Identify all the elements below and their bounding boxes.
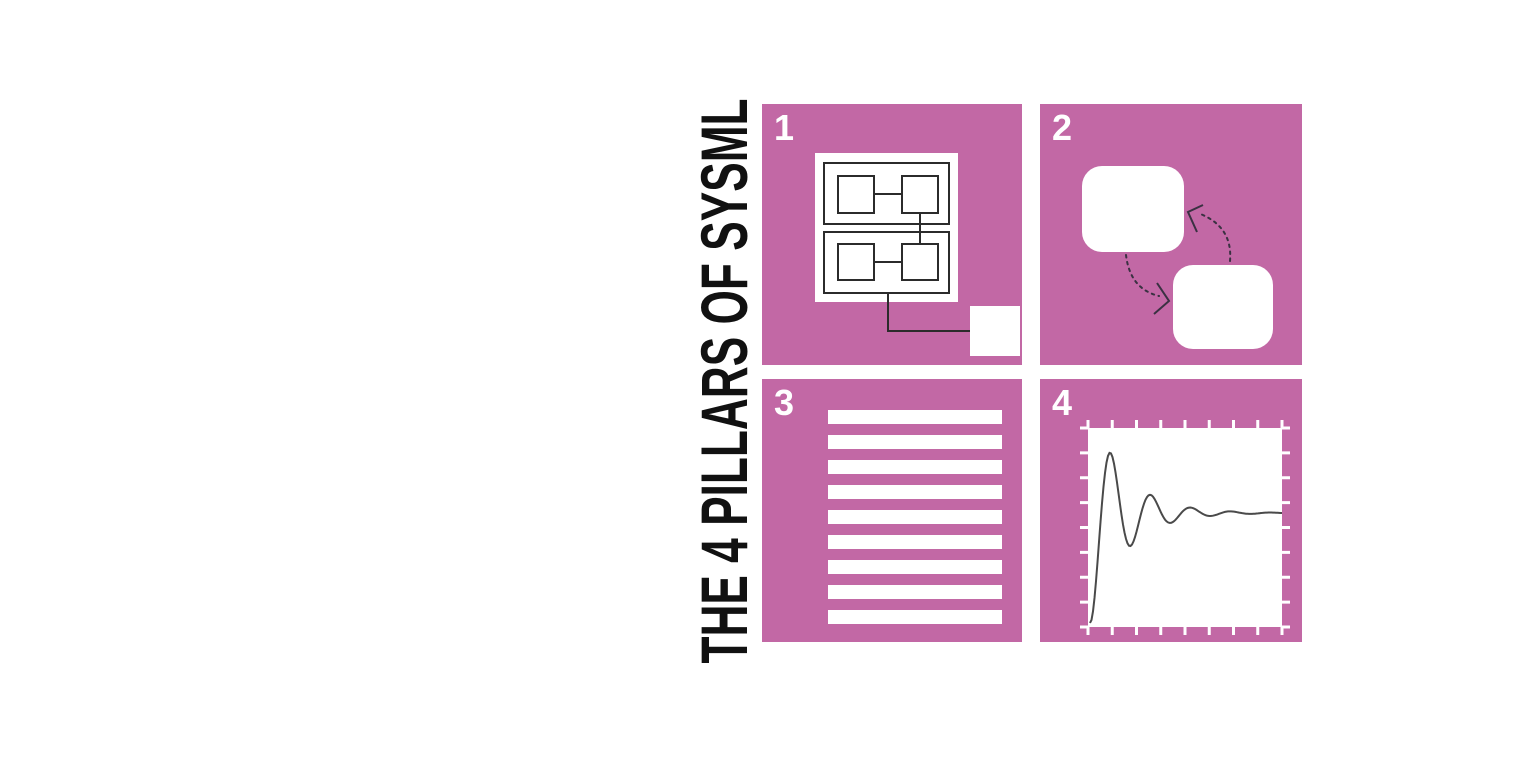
inner-block <box>838 244 874 280</box>
pillar-tile-1-structure: 1 <box>762 104 1022 365</box>
requirement-bars <box>828 410 1002 624</box>
requirements-text-lines-icon <box>762 379 1022 642</box>
transition-arrow-down <box>1126 255 1159 296</box>
inner-block <box>902 244 938 280</box>
plot-area <box>1088 428 1282 627</box>
block-definition-diagram-icon <box>762 104 1022 365</box>
parametric-response-plot-icon <box>1040 379 1302 642</box>
pillar-tile-3-requirements: 3 <box>762 379 1022 642</box>
state-node-top <box>1082 166 1184 252</box>
poster: THE 4 PILLARS OF SYSML 1 2 <box>0 0 1536 768</box>
poster-title: THE 4 PILLARS OF SYSML <box>686 98 762 663</box>
inner-block <box>902 176 938 213</box>
arrow-head-down <box>1154 283 1169 314</box>
arrow-head-up <box>1188 205 1203 232</box>
behavior-interaction-diagram-icon <box>1040 104 1302 365</box>
pillar-tile-4-parametrics: 4 <box>1040 379 1302 642</box>
state-node-bottom <box>1173 265 1273 349</box>
transition-arrow-up <box>1198 213 1230 261</box>
pillar-tile-2-behavior: 2 <box>1040 104 1302 365</box>
external-block <box>970 306 1020 356</box>
inner-block <box>838 176 874 213</box>
